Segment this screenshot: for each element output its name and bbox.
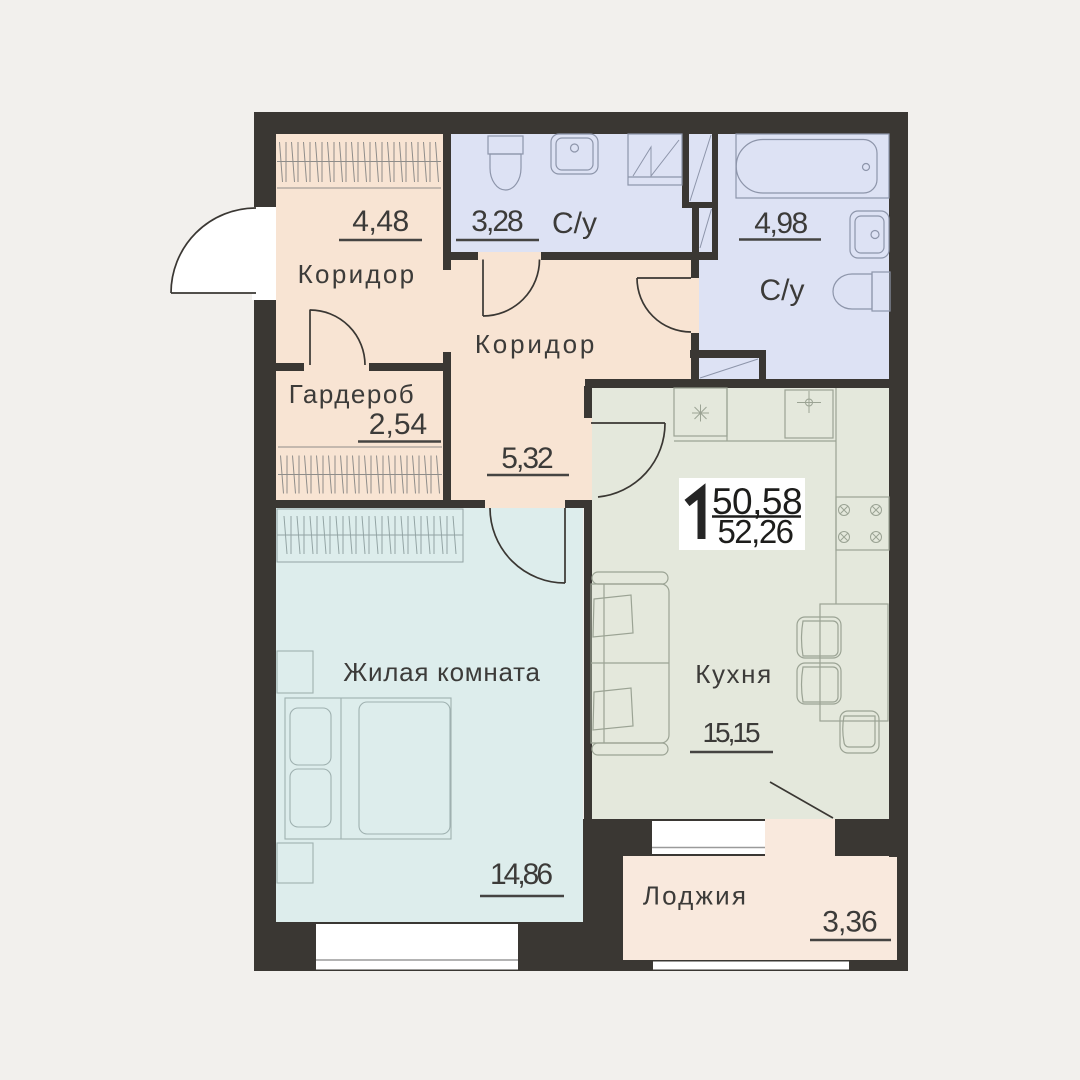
svg-text:Жилая комната: Жилая комната <box>343 657 541 687</box>
svg-text:2,54: 2,54 <box>369 408 427 441</box>
svg-text:Коридор: Коридор <box>475 329 597 359</box>
svg-text:52,26: 52,26 <box>717 513 792 550</box>
svg-text:Коридор: Коридор <box>298 259 417 289</box>
svg-text:14,86: 14,86 <box>490 858 552 891</box>
svg-text:3,28: 3,28 <box>471 205 523 238</box>
svg-text:С/у: С/у <box>552 207 597 240</box>
svg-text:4,48: 4,48 <box>352 205 408 238</box>
svg-text:Гардероб: Гардероб <box>289 379 415 409</box>
svg-text:С/у: С/у <box>760 274 805 307</box>
svg-text:5,32: 5,32 <box>501 442 553 475</box>
svg-text:Лоджия: Лоджия <box>643 881 748 911</box>
svg-text:4,98: 4,98 <box>754 207 807 240</box>
svg-text:15,15: 15,15 <box>702 717 759 748</box>
svg-text:Кухня: Кухня <box>695 659 773 689</box>
svg-text:3,36: 3,36 <box>822 906 877 939</box>
